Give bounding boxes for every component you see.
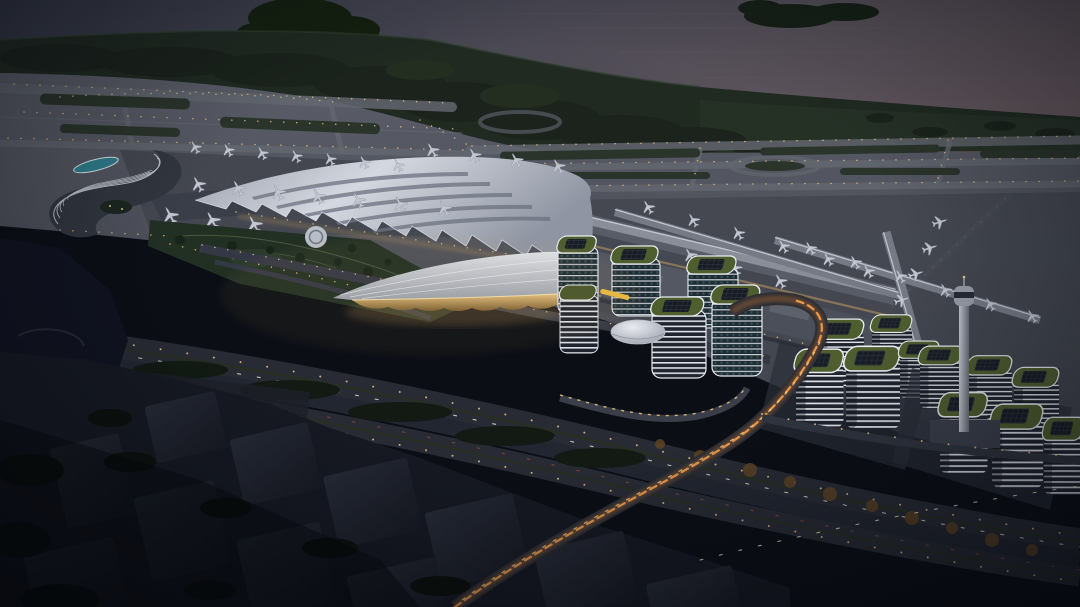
- atmosphere: [0, 0, 1080, 607]
- airport-aerial-scene: [0, 0, 1080, 607]
- rendering-canvas: [0, 0, 1080, 607]
